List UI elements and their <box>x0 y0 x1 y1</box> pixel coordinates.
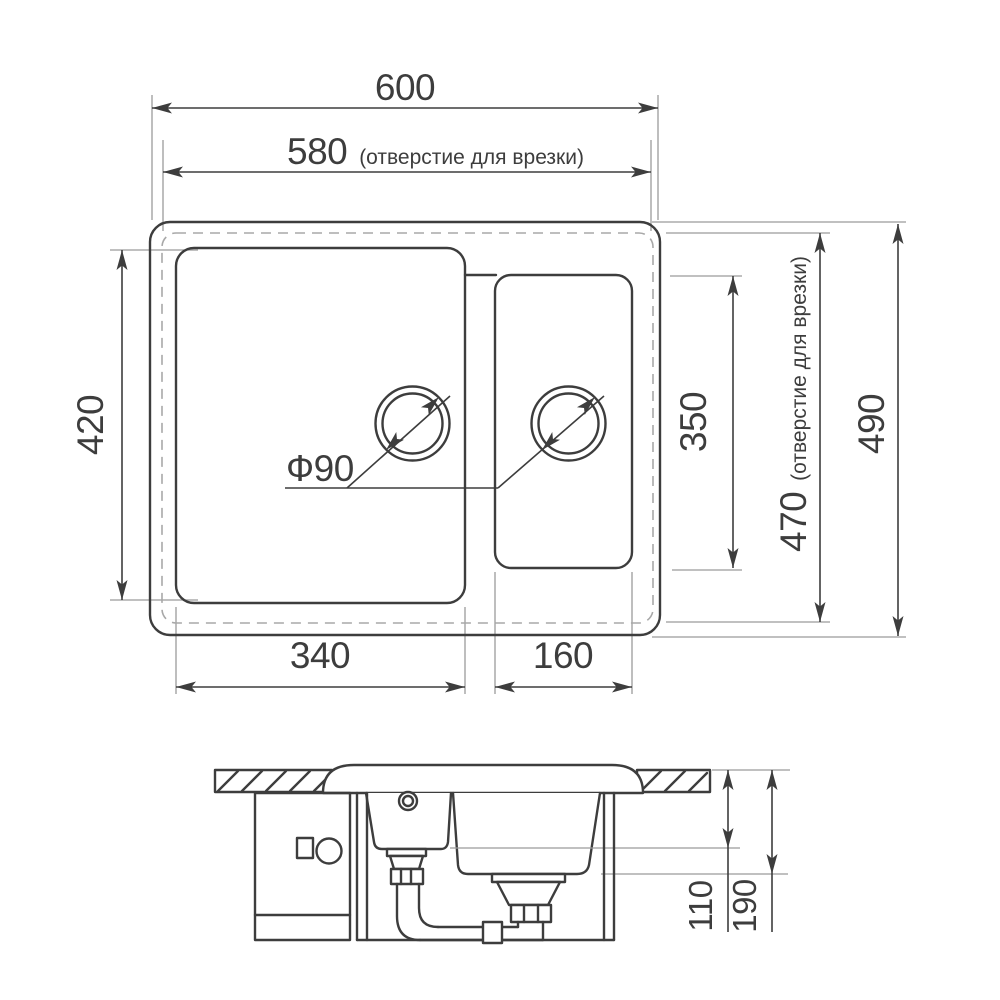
top-view: Ф90 600 580 (отверстие для врезки) 420 <box>70 67 906 694</box>
dim-label-large-bowl-depth: 190 <box>726 879 763 933</box>
dim-note-cutout-width: (отверстие для врезки) <box>359 146 584 169</box>
sink-outline <box>150 222 660 635</box>
dim-label-total-height: 490 <box>851 394 892 454</box>
dim-cutout-height: 470 (отверстие для врезки) <box>773 233 826 622</box>
countertop-left <box>215 770 332 792</box>
small-bowl-section <box>366 793 451 849</box>
dim-right-bowl-height: 350 <box>673 276 739 568</box>
cabinet-left <box>255 793 350 940</box>
dim-label-drain-diameter: Ф90 <box>286 448 354 489</box>
dim-note-cutout-height: (отверстие для врезки) <box>788 256 811 481</box>
sink-rim-profile <box>323 765 643 793</box>
cutout-dashed-outline <box>162 233 653 623</box>
dim-cutout-width: 580 (отверстие для врезки) <box>163 131 651 178</box>
dim-label-cutout-height: 470 <box>773 492 814 552</box>
sink-dimension-drawing: Ф90 600 580 (отверстие для врезки) 420 <box>0 0 1000 1000</box>
dim-large-bowl-depth: 190 <box>726 770 778 933</box>
dim-label-cutout-width: 580 <box>287 131 347 172</box>
dim-label-small-bowl-depth: 110 <box>682 880 719 931</box>
dim-left-bowl-height: 420 <box>70 250 128 600</box>
dim-right-bowl-width: 160 <box>495 635 632 693</box>
dim-label-right-bowl-height: 350 <box>673 392 714 452</box>
waste-pipe-horizontal <box>420 922 543 943</box>
dim-total-height: 490 <box>851 224 904 636</box>
drawing-page: Ф90 600 580 (отверстие для врезки) 420 <box>0 0 1000 1000</box>
large-bowl-section <box>453 793 600 874</box>
left-bowl <box>176 248 465 603</box>
drain-assembly-small <box>387 849 438 940</box>
pipe-coupling <box>483 922 502 943</box>
dim-label-right-bowl-width: 160 <box>533 635 593 676</box>
right-bowl <box>495 275 632 568</box>
cabinet-detail-square <box>297 838 313 858</box>
dim-label-left-bowl-height: 420 <box>70 395 111 455</box>
dim-label-total-width: 600 <box>375 67 435 108</box>
dim-label-left-bowl-width: 340 <box>290 635 350 676</box>
dim-total-width: 600 <box>152 67 658 114</box>
svg-text:580 (отверстие для вре: 580 (отверстие для врезки) <box>287 131 584 172</box>
svg-text:470 (отверстие для вре: 470 (отверстие для врезки) <box>773 256 814 552</box>
section-view: 110 190 <box>215 765 790 943</box>
countertop-right <box>637 770 710 792</box>
cabinet-detail-circle <box>317 839 342 864</box>
dim-left-bowl-width: 340 <box>176 635 465 693</box>
